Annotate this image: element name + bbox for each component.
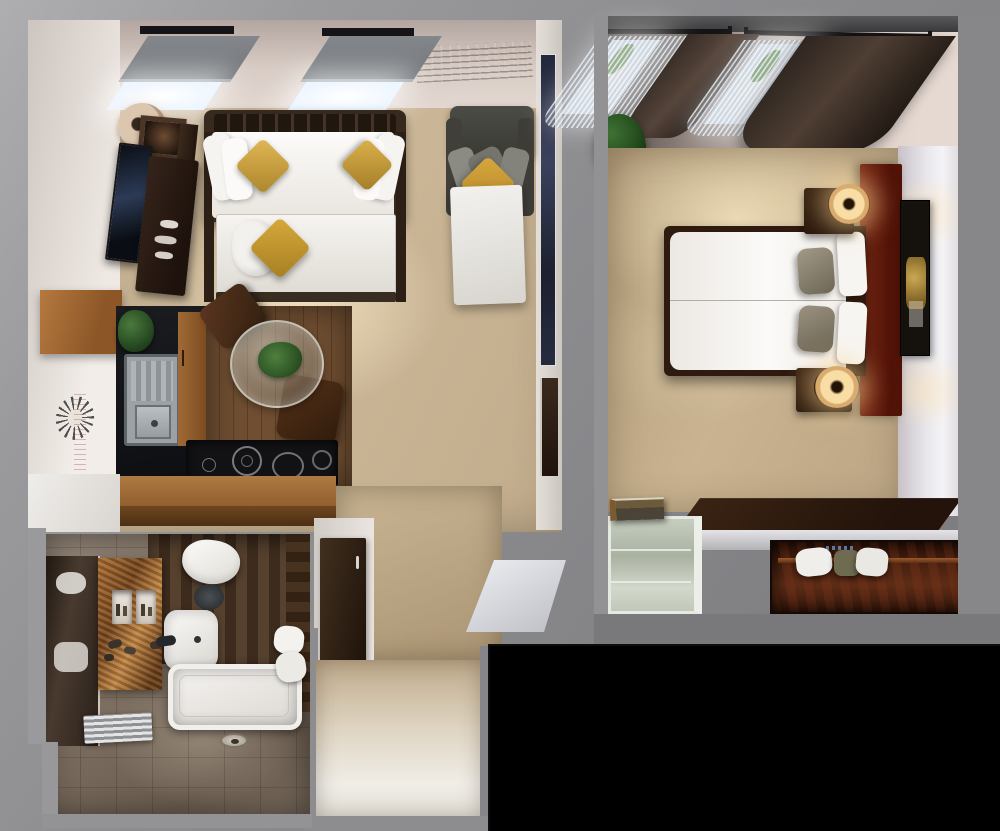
duvet-seam (670, 300, 846, 301)
hanging-clothes-white (855, 547, 889, 578)
pillow (836, 301, 867, 364)
cabinet-shelf-line (611, 549, 691, 551)
table-lamp-glowing (828, 184, 870, 224)
cabinet-shelf-line (611, 581, 691, 583)
bedroom-bottom-wall (594, 614, 1000, 646)
black-gold-artwork (900, 200, 930, 356)
hanging-clothes-white (795, 546, 834, 578)
open-wardrobe (770, 540, 972, 614)
floorplan-render: Top-down 3D rendered floor plan: studio … (0, 0, 1000, 831)
books-stack (610, 497, 665, 521)
taupe-accent-pillow (796, 247, 835, 295)
bedroom-left-wall (594, 16, 608, 650)
bedroom-right-outer-wall (958, 16, 1000, 652)
void-black-area (488, 644, 1000, 831)
desk-ledge-top (675, 498, 962, 532)
frosted-glass-cabinet (608, 516, 702, 614)
artwork-light-patch (909, 301, 923, 327)
taupe-accent-pillow (796, 305, 835, 353)
table-lamp-glowing (814, 366, 860, 408)
pillow (836, 231, 867, 296)
